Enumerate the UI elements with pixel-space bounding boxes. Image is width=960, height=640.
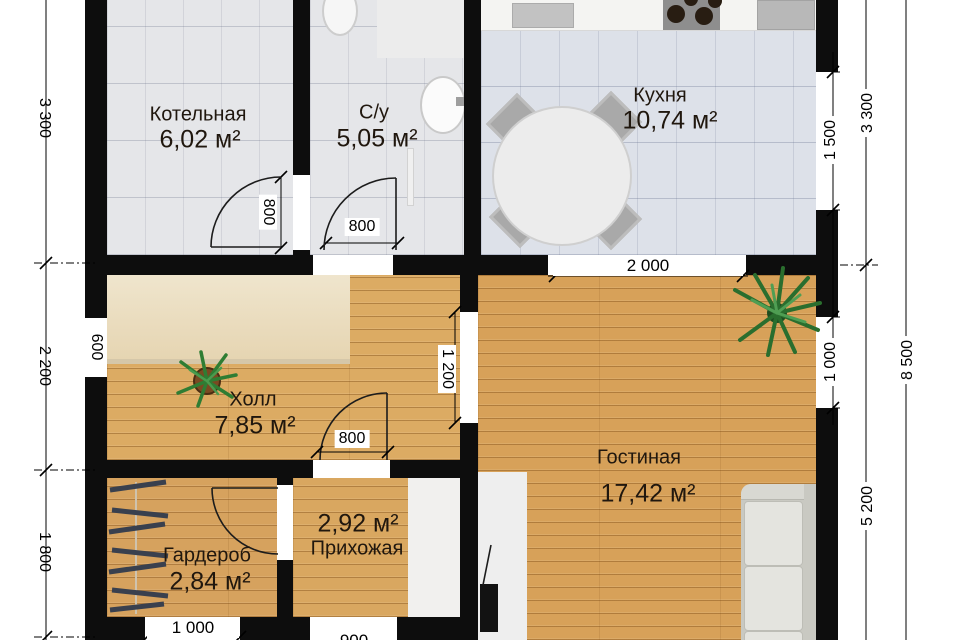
room-label-wardrobe: Гардероб: [163, 545, 251, 568]
dim-label-door-boiler: 800: [259, 195, 277, 230]
room-area-entry: 2,92 м²: [317, 510, 398, 539]
room-area-boiler: 6,02 м²: [159, 126, 240, 155]
plan-linework: [0, 0, 960, 640]
room-label-kitchen: Кухня: [633, 85, 687, 108]
hanger-icons: [109, 482, 168, 614]
dim-label-bottom-1000: 1 000: [147, 618, 239, 638]
dim-label-opening-2000: 2 000: [553, 256, 743, 276]
room-label-hall: Холл: [229, 389, 276, 412]
dim-label-left-3300: 3 300: [36, 98, 52, 138]
room-area-hall: 7,85 м²: [214, 412, 295, 441]
dim-label-right-8500: 8 500: [899, 336, 917, 384]
plant-icon-living: [735, 268, 820, 355]
dim-label-left-2200: 2 200: [36, 346, 52, 386]
dim-label-door-bath: 800: [345, 218, 380, 236]
dim-label-right-3300: 3 300: [859, 89, 877, 137]
dim-label-window-1000: 1 000: [822, 338, 840, 386]
dim-label-right-5200: 5 200: [859, 482, 877, 530]
dim-label-opening-1200: 1 200: [438, 345, 456, 393]
dim-label-left-1800: 1 800: [36, 532, 52, 572]
floor-plan: Котельная 6,02 м² С/у 5,05 м² Кухня 10,7…: [0, 0, 960, 640]
room-label-boiler: Котельная: [150, 104, 247, 127]
room-area-kitchen: 10,74 м²: [622, 107, 717, 136]
dim-label-bottom-900: 900: [311, 618, 397, 640]
room-label-entry: Прихожая: [311, 538, 404, 561]
dim-text-2000: 2 000: [627, 256, 670, 276]
dim-label-door-hall: 800: [335, 430, 370, 448]
plant-icon-hall: [178, 352, 236, 406]
dim-label-window-600: 600: [87, 330, 105, 365]
room-label-living: Гостиная: [597, 447, 681, 470]
dim-text-bottom-900: 900: [340, 631, 368, 640]
room-area-bath: 5,05 м²: [336, 125, 417, 154]
room-area-living: 17,42 м²: [600, 480, 695, 509]
room-area-wardrobe: 2,84 м²: [169, 568, 250, 597]
room-label-bath: С/у: [359, 102, 389, 125]
dim-text-bottom-1000: 1 000: [172, 618, 215, 638]
dim-label-window-1500: 1 500: [822, 116, 840, 164]
